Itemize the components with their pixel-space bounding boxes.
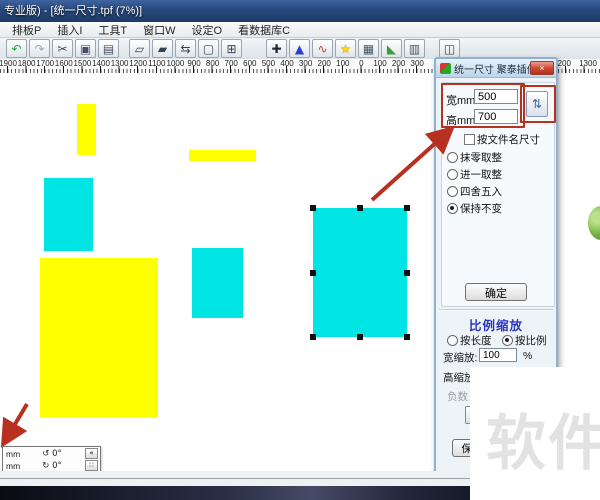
ruler-label: 800 xyxy=(206,59,219,68)
window-title: 专业版) - [统一尺寸.tpf (7%)] xyxy=(4,5,142,17)
cut-icon: ✂ xyxy=(57,43,67,55)
rotation-angle: ↻ 0° xyxy=(32,461,72,471)
ruler-label: 1900 xyxy=(0,59,17,68)
section-divider xyxy=(439,309,553,311)
grid-snap-button[interactable]: ∷ xyxy=(85,460,98,471)
selection-handle[interactable] xyxy=(310,205,316,211)
ruler-label: 900 xyxy=(187,59,200,68)
overlap-check-button[interactable]: ▢ xyxy=(198,39,219,58)
ruler-label: 0 xyxy=(359,59,363,68)
width-scale-label: 宽缩放: xyxy=(443,350,477,365)
nest-pieces-icon: ▱ xyxy=(135,43,144,55)
menu-item-0[interactable]: 排板P xyxy=(12,22,41,38)
menu-item-1[interactable]: 插入I xyxy=(57,22,82,38)
negative-label: 负数 xyxy=(447,389,468,404)
cyan-piece-middle[interactable] xyxy=(192,248,243,318)
selection-handle[interactable] xyxy=(310,270,316,276)
ruler-label: 400 xyxy=(280,59,293,68)
filename-size-checkbox[interactable] xyxy=(464,134,475,145)
scale-label-1: 按比例 xyxy=(515,333,547,348)
rounding-label-0: 抹零取整 xyxy=(460,150,502,165)
status-unit: mm xyxy=(3,461,32,471)
ruler-label: 600 xyxy=(243,59,256,68)
close-icon[interactable]: × xyxy=(530,61,554,75)
menu-item-4[interactable]: 设定O xyxy=(192,22,223,38)
move-piece-icon: ✚ xyxy=(271,43,281,55)
nest-pieces-button[interactable]: ▱ xyxy=(129,39,150,58)
rounding-radio-3[interactable] xyxy=(447,203,458,214)
terrain-button[interactable]: ◣ xyxy=(381,39,402,58)
yellow-piece-large[interactable] xyxy=(40,258,158,418)
ruler-label: 1000 xyxy=(166,59,184,68)
ruler-label: 300 xyxy=(411,59,424,68)
selection-handle[interactable] xyxy=(404,334,410,340)
scale-radio-0[interactable] xyxy=(447,335,458,346)
selection-handle[interactable] xyxy=(404,205,410,211)
scale-radio-1[interactable] xyxy=(502,335,513,346)
selection-handle[interactable] xyxy=(357,205,363,211)
rounding-radio-1[interactable] xyxy=(447,169,458,180)
move-piece-button[interactable]: ✚ xyxy=(266,39,287,58)
ok-button[interactable]: 确定 xyxy=(465,283,527,301)
ruler-label: 300 xyxy=(299,59,312,68)
yellow-piece-small[interactable] xyxy=(77,104,96,155)
undo-button[interactable]: ↶ xyxy=(6,39,27,58)
yellow-piece-bar[interactable] xyxy=(189,150,256,161)
ruler-label: 500 xyxy=(262,59,275,68)
ruler-label: 100 xyxy=(336,59,349,68)
ruler-label: 1300 xyxy=(111,59,129,68)
piece-info-panel: mm↺ 0°mm↻ 0°«∷ xyxy=(2,446,101,473)
color-curve-button[interactable]: ∿ xyxy=(312,39,333,58)
ruler-label: 1800 xyxy=(18,59,36,68)
paste-button[interactable]: ▤ xyxy=(98,39,119,58)
annotation-box-size-fields xyxy=(441,83,525,128)
rounding-label-1: 进一取整 xyxy=(460,167,502,182)
shape-tools-icon: ▲ xyxy=(295,43,304,55)
status-row-0: mm↺ 0° xyxy=(3,448,83,460)
plugin-logo-icon xyxy=(588,206,600,240)
nest-offset-button[interactable]: ▰ xyxy=(152,39,173,58)
star-button[interactable]: ★ xyxy=(335,39,356,58)
rotation-angle: ↺ 0° xyxy=(32,449,72,459)
swap-order-button[interactable]: ⇆ xyxy=(175,39,196,58)
filename-size-label: 按文件名尺寸 xyxy=(477,132,540,147)
width-scale-input[interactable] xyxy=(479,348,517,362)
undo-icon: ↶ xyxy=(11,43,21,55)
dialog-title-bar[interactable]: 统一尺寸 聚泰插件... × xyxy=(436,59,556,78)
cut-button[interactable]: ✂ xyxy=(52,39,73,58)
selection-handle[interactable] xyxy=(310,334,316,340)
title-bar: 专业版) - [统一尺寸.tpf (7%)] xyxy=(0,0,600,22)
plot-icon: ▥ xyxy=(409,43,420,55)
redo-button[interactable]: ↷ xyxy=(29,39,50,58)
star-icon: ★ xyxy=(340,43,351,55)
ruler-label: 1400 xyxy=(92,59,110,68)
ruler-label: 1500 xyxy=(73,59,91,68)
menu-item-3[interactable]: 窗口W xyxy=(143,22,175,38)
menu-item-5[interactable]: 看数据库C xyxy=(238,22,290,38)
window-layout-icon: ⊞ xyxy=(226,43,236,55)
rounding-radio-2[interactable] xyxy=(447,186,458,197)
nest-offset-icon: ▰ xyxy=(158,43,167,55)
annotation-box-swap-button xyxy=(520,85,556,123)
ruler-label: 1100 xyxy=(148,59,165,68)
application-window: { "colors": { "titlebar_blue": "#27497c"… xyxy=(0,0,600,500)
print-preview-button[interactable]: ◫ xyxy=(439,39,460,58)
swap-order-icon: ⇆ xyxy=(180,43,190,55)
window-layout-button[interactable]: ⊞ xyxy=(221,39,242,58)
mesh-button[interactable]: ▦ xyxy=(358,39,379,58)
scrollbar-track-line xyxy=(0,478,470,479)
ruler-label: 100 xyxy=(373,59,386,68)
dialog-icon xyxy=(440,63,451,74)
status-unit: mm xyxy=(3,449,32,459)
copy-icon: ▣ xyxy=(80,43,91,55)
cyan-piece-selected[interactable] xyxy=(313,208,407,337)
ruler-label: 1300 xyxy=(579,59,597,68)
ruler-label: 1700 xyxy=(36,59,54,68)
menu-item-2[interactable]: 工具T xyxy=(98,22,127,38)
print-preview-icon: ◫ xyxy=(444,43,455,55)
shape-tools-button[interactable]: ▲ xyxy=(289,39,310,58)
ruler-label: 1600 xyxy=(55,59,73,68)
rounding-label-2: 四舍五入 xyxy=(460,184,502,199)
watermark-overlay: 软件 xyxy=(470,367,600,500)
rounding-radio-0[interactable] xyxy=(447,152,458,163)
terrain-icon: ◣ xyxy=(387,43,396,55)
selection-handle[interactable] xyxy=(357,334,363,340)
ruler-label: 200 xyxy=(392,59,405,68)
copy-button[interactable]: ▣ xyxy=(75,39,96,58)
mesh-icon: ▦ xyxy=(363,43,374,55)
selection-handle[interactable] xyxy=(404,270,410,276)
rounding-label-3: 保持不变 xyxy=(460,201,502,216)
watermark-text: 软件 xyxy=(486,395,600,482)
paste-icon: ▤ xyxy=(103,43,114,55)
menu-bar: 排板P插入I工具T窗口W设定O看数据库C xyxy=(0,22,600,38)
ruler-label: 700 xyxy=(225,59,238,68)
cyan-piece-left[interactable] xyxy=(44,178,93,251)
width-scale-unit: % xyxy=(523,350,532,362)
scale-label-0: 按长度 xyxy=(460,333,492,348)
plot-button[interactable]: ▥ xyxy=(404,39,425,58)
redo-icon: ↷ xyxy=(34,43,44,55)
overlap-check-icon: ▢ xyxy=(203,43,214,55)
scale-section-title: 比例缩放 xyxy=(436,315,556,334)
dialog-title: 统一尺寸 聚泰插件... xyxy=(454,61,530,76)
ruler-label: 1200 xyxy=(129,59,147,68)
color-curve-icon: ∿ xyxy=(317,43,327,55)
collapse-panel-button[interactable]: « xyxy=(85,448,98,459)
ruler-label: 200 xyxy=(318,59,331,68)
